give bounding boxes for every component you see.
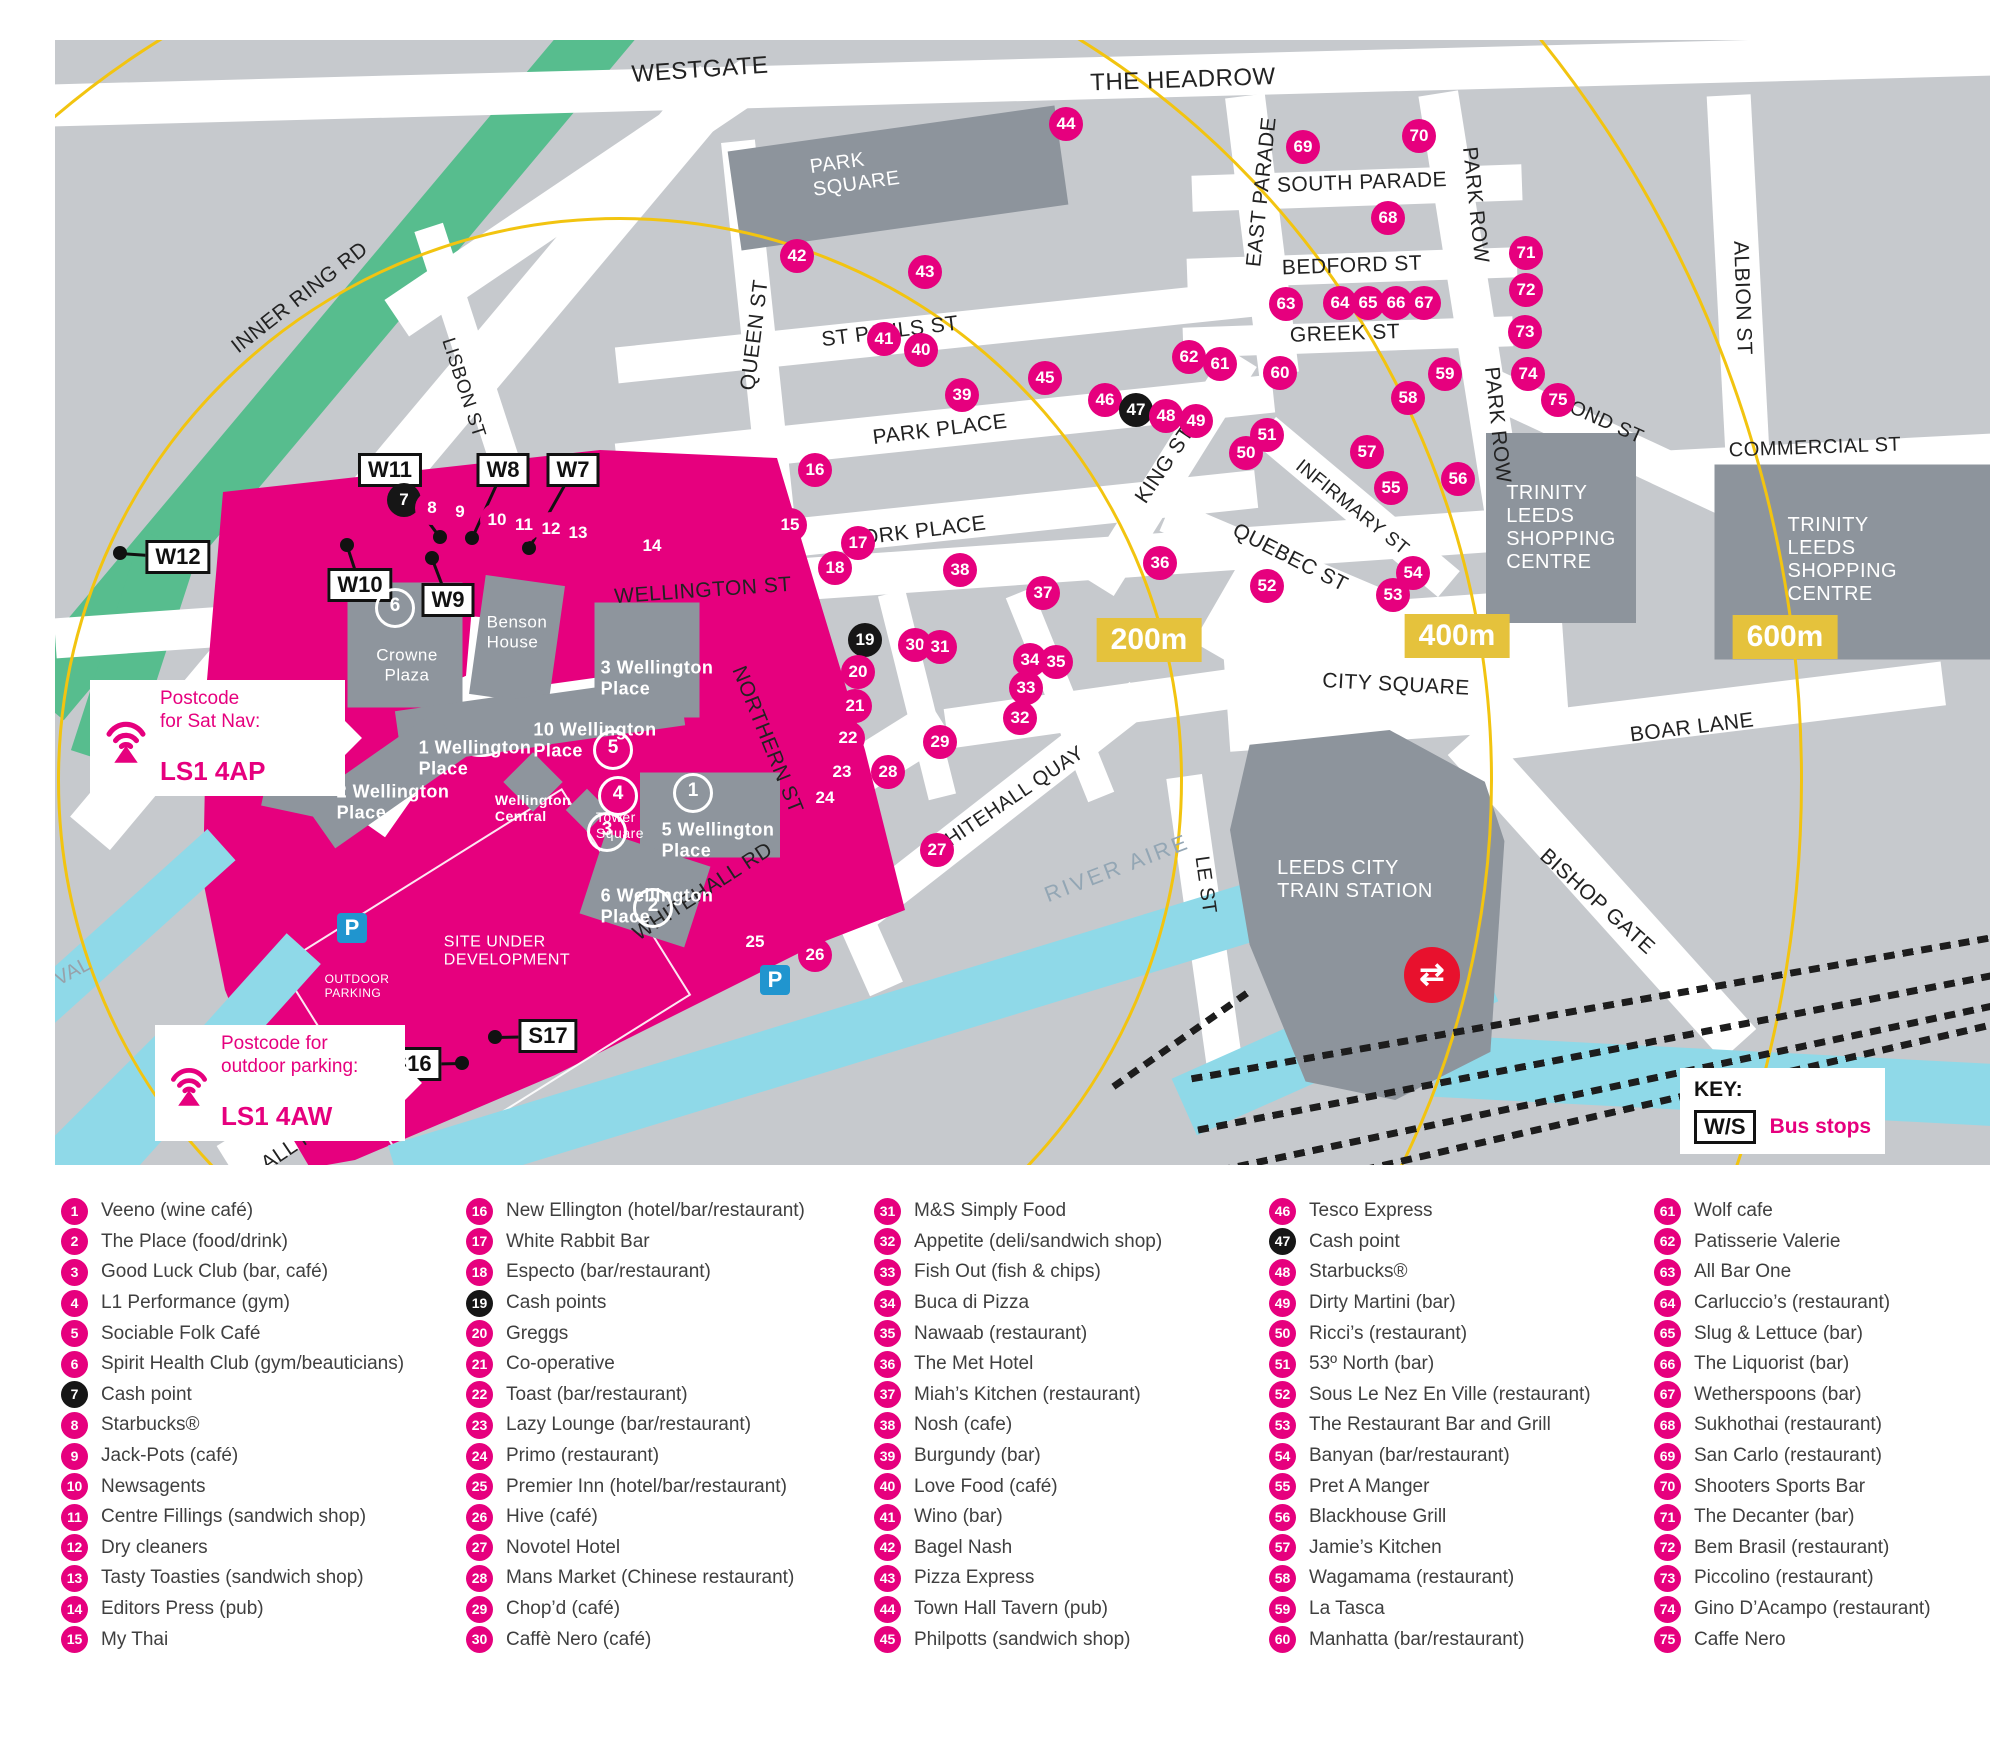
legend-item-69: 69San Carlo (restaurant): [1654, 1441, 1931, 1472]
legend-item-12: 12Dry cleaners: [61, 1533, 404, 1564]
map-key: KEY: W/S Bus stops: [1680, 1068, 1885, 1154]
legend-item-30: 30Caffè Nero (café): [466, 1624, 805, 1655]
legend-label-31: M&S Simply Food: [914, 1200, 1066, 1222]
map-marker-29[interactable]: 29: [923, 725, 957, 759]
legend-item-33: 33Fish Out (fish & chips): [874, 1257, 1162, 1288]
map-marker-51[interactable]: 51: [1250, 418, 1284, 452]
legend-item-62: 62Patisserie Valerie: [1654, 1227, 1931, 1258]
legend-item-39: 39Burgundy (bar): [874, 1441, 1162, 1472]
legend-item-42: 42Bagel Nash: [874, 1533, 1162, 1564]
legend-item-47: 47Cash point: [1269, 1227, 1591, 1258]
legend-label-56: Blackhouse Grill: [1309, 1506, 1446, 1528]
map-marker-24[interactable]: 24: [808, 781, 842, 815]
legend-item-31: 31M&S Simply Food: [874, 1196, 1162, 1227]
satnav-postcode: LS1 4AP: [160, 756, 266, 786]
map-marker-26[interactable]: 26: [798, 938, 832, 972]
legend-item-45: 45Philpotts (sandwich shop): [874, 1624, 1162, 1655]
legend-label-6: Spirit Health Club (gym/beauticians): [101, 1353, 404, 1375]
legend-number-11: 11: [61, 1504, 88, 1531]
legend-label-1: Veeno (wine café): [101, 1200, 253, 1222]
legend-label-23: Lazy Lounge (bar/restaurant): [506, 1414, 751, 1436]
legend-number-24: 24: [466, 1443, 493, 1470]
legend-item-38: 38Nosh (cafe): [874, 1410, 1162, 1441]
legend-number-27: 27: [466, 1534, 493, 1561]
legend-number-73: 73: [1654, 1565, 1681, 1592]
legend-label-21: Co-operative: [506, 1353, 615, 1375]
legend-label-46: Tesco Express: [1309, 1200, 1433, 1222]
legend-number-23: 23: [466, 1412, 493, 1439]
map-marker-57[interactable]: 57: [1350, 435, 1384, 469]
legend-number-74: 74: [1654, 1596, 1681, 1623]
legend-number-14: 14: [61, 1596, 88, 1623]
legend-item-25: 25Premier Inn (hotel/bar/restaurant): [466, 1471, 805, 1502]
legend-number-39: 39: [874, 1443, 901, 1470]
legend-item-10: 10Newsagents: [61, 1471, 404, 1502]
legend-number-25: 25: [466, 1473, 493, 1500]
map-label-bedford-st: BEDFORD ST: [1281, 251, 1422, 280]
legend-item-19: 19Cash points: [466, 1288, 805, 1319]
legend-label-53: The Restaurant Bar and Grill: [1309, 1414, 1551, 1436]
legend-item-74: 74Gino D’Acampo (restaurant): [1654, 1594, 1931, 1625]
legend-number-70: 70: [1654, 1473, 1681, 1500]
legend-label-26: Hive (café): [506, 1506, 598, 1528]
legend-number-35: 35: [874, 1320, 901, 1347]
legend-number-40: 40: [874, 1473, 901, 1500]
map-marker-47[interactable]: 47: [1119, 393, 1153, 427]
distance-badge-600m: 600m: [1733, 615, 1838, 659]
map-marker-15[interactable]: 15: [773, 508, 807, 542]
map-marker-19[interactable]: 19: [848, 623, 882, 657]
legend-number-18: 18: [466, 1259, 493, 1286]
satnav-callout-text: Postcode for Sat Nav:: [160, 688, 260, 732]
map-marker-41[interactable]: 41: [867, 322, 901, 356]
legend-number-71: 71: [1654, 1504, 1681, 1531]
map-marker-75[interactable]: 75: [1541, 383, 1575, 417]
legend-label-15: My Thai: [101, 1629, 168, 1651]
map-marker-58[interactable]: 58: [1391, 381, 1425, 415]
legend-label-41: Wino (bar): [914, 1506, 1003, 1528]
legend-number-12: 12: [61, 1534, 88, 1561]
legend-item-21: 21Co-operative: [466, 1349, 805, 1380]
map-marker-46[interactable]: 46: [1088, 383, 1122, 417]
map-marker-35[interactable]: 35: [1039, 645, 1073, 679]
legend-item-68: 68Sukhothai (restaurant): [1654, 1410, 1931, 1441]
bus-stop-W12[interactable]: W12: [145, 540, 210, 574]
legend-label-4: L1 Performance (gym): [101, 1292, 290, 1314]
legend-item-32: 32Appetite (deli/sandwich shop): [874, 1227, 1162, 1258]
legend-column-1: 1Veeno (wine café)2The Place (food/drink…: [61, 1196, 404, 1655]
legend-item-64: 64Carluccio’s (restaurant): [1654, 1288, 1931, 1319]
map-marker-6[interactable]: 6: [375, 588, 415, 628]
legend-label-54: Banyan (bar/restaurant): [1309, 1445, 1510, 1467]
legend-item-46: 46Tesco Express: [1269, 1196, 1591, 1227]
map-label-5-wellington-place: 5 Wellington Place: [662, 819, 775, 860]
legend-item-28: 28Mans Market (Chinese restaurant): [466, 1563, 805, 1594]
legend-item-35: 35Nawaab (restaurant): [874, 1318, 1162, 1349]
map-marker-40[interactable]: 40: [904, 333, 938, 367]
legend-label-72: Bem Brasil (restaurant): [1694, 1537, 1889, 1559]
legend-item-70: 70Shooters Sports Bar: [1654, 1471, 1931, 1502]
legend-item-16: 16New Ellington (hotel/bar/restaurant): [466, 1196, 805, 1227]
legend-number-31: 31: [874, 1198, 901, 1225]
legend-item-66: 66The Liquorist (bar): [1654, 1349, 1931, 1380]
legend-column-4: 46Tesco Express47Cash point48Starbucks®4…: [1269, 1196, 1591, 1655]
bus-stop-symbol: W/S: [1694, 1110, 1756, 1144]
map-marker-1[interactable]: 1: [673, 773, 713, 813]
map-marker-2[interactable]: 2: [633, 888, 673, 928]
legend-number-58: 58: [1269, 1565, 1296, 1592]
map-marker-18[interactable]: 18: [818, 551, 852, 585]
legend-item-14: 14Editors Press (pub): [61, 1594, 404, 1625]
legend-item-65: 65Slug & Lettuce (bar): [1654, 1318, 1931, 1349]
legend-label-38: Nosh (cafe): [914, 1414, 1012, 1436]
map-marker-74[interactable]: 74: [1511, 357, 1545, 391]
legend-item-5: 5Sociable Folk Café: [61, 1318, 404, 1349]
legend-label-60: Manhatta (bar/restaurant): [1309, 1629, 1524, 1651]
map-marker-9[interactable]: 9: [443, 495, 477, 529]
legend-number-75: 75: [1654, 1626, 1681, 1653]
legend-item-37: 37Miah’s Kitchen (restaurant): [874, 1380, 1162, 1411]
legend-item-13: 13Tasty Toasties (sandwich shop): [61, 1563, 404, 1594]
legend-label-12: Dry cleaners: [101, 1537, 208, 1559]
map-marker-72[interactable]: 72: [1509, 273, 1543, 307]
legend-item-49: 49Dirty Martini (bar): [1269, 1288, 1591, 1319]
legend-number-41: 41: [874, 1504, 901, 1531]
legend-label-27: Novotel Hotel: [506, 1537, 620, 1559]
legend-column-2: 16New Ellington (hotel/bar/restaurant)17…: [466, 1196, 805, 1655]
legend-number-30: 30: [466, 1626, 493, 1653]
legend-number-44: 44: [874, 1596, 901, 1623]
map-marker-62[interactable]: 62: [1172, 340, 1206, 374]
legend-label-9: Jack-Pots (café): [101, 1445, 238, 1467]
bus-stop-W8[interactable]: W8: [477, 453, 530, 487]
legend-item-75: 75Caffe Nero: [1654, 1624, 1931, 1655]
bus-stop-W7[interactable]: W7: [547, 453, 600, 487]
satnav-postcode-callout: Postcode for Sat Nav: LS1 4AP: [90, 680, 345, 796]
legend-number-64: 64: [1654, 1290, 1681, 1317]
legend-label-74: Gino D’Acampo (restaurant): [1694, 1598, 1931, 1620]
map-marker-43[interactable]: 43: [908, 255, 942, 289]
legend-item-22: 22Toast (bar/restaurant): [466, 1380, 805, 1411]
legend-number-68: 68: [1654, 1412, 1681, 1439]
legend-label-11: Centre Fillings (sandwich shop): [101, 1506, 366, 1528]
legend-number-69: 69: [1654, 1443, 1681, 1470]
parking-icon-2: P: [337, 913, 367, 943]
legend-label-32: Appetite (deli/sandwich shop): [914, 1231, 1162, 1253]
map-marker-31[interactable]: 31: [923, 630, 957, 664]
legend-item-52: 52Sous Le Nez En Ville (restaurant): [1269, 1380, 1591, 1411]
legend-label-25: Premier Inn (hotel/bar/restaurant): [506, 1476, 787, 1498]
legend-number-37: 37: [874, 1381, 901, 1408]
map-marker-52[interactable]: 52: [1250, 569, 1284, 603]
legend-number-45: 45: [874, 1626, 901, 1653]
legend-label-35: Nawaab (restaurant): [914, 1323, 1087, 1345]
bus-stop-S17[interactable]: S17: [518, 1019, 577, 1053]
map-marker-61[interactable]: 61: [1203, 347, 1237, 381]
legend-label-73: Piccolino (restaurant): [1694, 1567, 1874, 1589]
map-marker-4[interactable]: 4: [598, 776, 638, 816]
map-marker-54[interactable]: 54: [1396, 556, 1430, 590]
legend-item-40: 40Love Food (café): [874, 1471, 1162, 1502]
map-marker-32[interactable]: 32: [1003, 701, 1037, 735]
bus-stop-label: Bus stops: [1770, 1115, 1872, 1139]
legend-label-2: The Place (food/drink): [101, 1231, 288, 1253]
map-marker-25[interactable]: 25: [738, 925, 772, 959]
legend-item-54: 54Banyan (bar/restaurant): [1269, 1441, 1591, 1472]
legend-label-40: Love Food (café): [914, 1476, 1058, 1498]
legend-item-61: 61Wolf cafe: [1654, 1196, 1931, 1227]
legend-number-28: 28: [466, 1565, 493, 1592]
legend-label-47: Cash point: [1309, 1231, 1400, 1253]
map-marker-59[interactable]: 59: [1428, 357, 1462, 391]
legend-number-51: 51: [1269, 1351, 1296, 1378]
legend-item-17: 17White Rabbit Bar: [466, 1227, 805, 1258]
map-marker-27[interactable]: 27: [920, 833, 954, 867]
legend-item-29: 29Chop’d (café): [466, 1594, 805, 1625]
map-label-albion-st: ALBION ST: [1728, 241, 1756, 356]
legend-item-9: 9Jack-Pots (café): [61, 1441, 404, 1472]
national-rail-icon: ⇄: [1404, 947, 1460, 1003]
legend-number-63: 63: [1654, 1259, 1681, 1286]
legend-number-54: 54: [1269, 1443, 1296, 1470]
legend-item-63: 63All Bar One: [1654, 1257, 1931, 1288]
map-marker-71[interactable]: 71: [1509, 236, 1543, 270]
legend-label-22: Toast (bar/restaurant): [506, 1384, 688, 1406]
legend-item-24: 24Primo (restaurant): [466, 1441, 805, 1472]
legend-item-34: 34Buca di Pizza: [874, 1288, 1162, 1319]
legend-item-67: 67Wetherspoons (bar): [1654, 1380, 1931, 1411]
legend-label-68: Sukhothai (restaurant): [1694, 1414, 1882, 1436]
legend-label-44: Town Hall Tavern (pub): [914, 1598, 1108, 1620]
legend-label-45: Philpotts (sandwich shop): [914, 1629, 1131, 1651]
legend-label-43: Pizza Express: [914, 1567, 1034, 1589]
legend-number-66: 66: [1654, 1351, 1681, 1378]
map-marker-38[interactable]: 38: [943, 553, 977, 587]
map-marker-70[interactable]: 70: [1402, 119, 1436, 153]
legend-number-48: 48: [1269, 1259, 1296, 1286]
map-marker-37[interactable]: 37: [1026, 576, 1060, 610]
map-label-2-wellington-place: 2 Wellington Place: [337, 781, 450, 822]
legend-label-69: San Carlo (restaurant): [1694, 1445, 1882, 1467]
map-marker-45[interactable]: 45: [1028, 361, 1062, 395]
legend-number-26: 26: [466, 1504, 493, 1531]
legend-number-59: 59: [1269, 1596, 1296, 1623]
legend-number-10: 10: [61, 1473, 88, 1500]
legend-label-49: Dirty Martini (bar): [1309, 1292, 1456, 1314]
legend-item-59: 59La Tasca: [1269, 1594, 1591, 1625]
map-marker-42[interactable]: 42: [780, 239, 814, 273]
legend-item-44: 44Town Hall Tavern (pub): [874, 1594, 1162, 1625]
legend-number-60: 60: [1269, 1626, 1296, 1653]
legend-number-13: 13: [61, 1565, 88, 1592]
legend-item-50: 50Ricci’s (restaurant): [1269, 1318, 1591, 1349]
legend-label-29: Chop’d (café): [506, 1598, 620, 1620]
legend-label-48: Starbucks®: [1309, 1261, 1407, 1283]
map-marker-22[interactable]: 22: [831, 721, 865, 755]
legend-label-34: Buca di Pizza: [914, 1292, 1029, 1314]
legend-number-32: 32: [874, 1228, 901, 1255]
legend-label-52: Sous Le Nez En Ville (restaurant): [1309, 1384, 1591, 1406]
legend-number-9: 9: [61, 1443, 88, 1470]
map-marker-36[interactable]: 36: [1143, 546, 1177, 580]
map-marker-28[interactable]: 28: [871, 755, 905, 789]
satnav-beacon-icon: [100, 712, 152, 764]
map-marker-49[interactable]: 49: [1179, 404, 1213, 438]
map-marker-68[interactable]: 68: [1371, 201, 1405, 235]
outdoor-parking-callout-text: Postcode for outdoor parking:: [221, 1033, 358, 1077]
legend-label-36: The Met Hotel: [914, 1353, 1033, 1375]
map-marker-39[interactable]: 39: [945, 378, 979, 412]
legend-item-2: 2The Place (food/drink): [61, 1227, 404, 1258]
outdoor-parking-postcode-callout: Postcode for outdoor parking: LS1 4AW: [155, 1025, 405, 1141]
leeds-wellington-place-map-page: WESTGATETHE HEADROWSOUTH PARADEBEDFORD S…: [0, 0, 2000, 1758]
legend-item-53: 53The Restaurant Bar and Grill: [1269, 1410, 1591, 1441]
map-marker-73[interactable]: 73: [1508, 315, 1542, 349]
legend-label-59: La Tasca: [1309, 1598, 1385, 1620]
legend-number-33: 33: [874, 1259, 901, 1286]
map-label-benson-house: Benson House: [487, 612, 548, 651]
map-label-leeds-city-train-station: LEEDS CITY TRAIN STATION: [1277, 857, 1433, 903]
legend-number-5: 5: [61, 1320, 88, 1347]
legend-number-38: 38: [874, 1412, 901, 1439]
bus-stop-W11[interactable]: W11: [358, 453, 422, 487]
legend-item-3: 3Good Luck Club (bar, café): [61, 1257, 404, 1288]
legend-number-7: 7: [61, 1381, 88, 1408]
legend-number-21: 21: [466, 1351, 493, 1378]
legend-label-64: Carluccio’s (restaurant): [1694, 1292, 1890, 1314]
legend-item-23: 23Lazy Lounge (bar/restaurant): [466, 1410, 805, 1441]
legend-label-66: The Liquorist (bar): [1694, 1353, 1849, 1375]
legend-number-55: 55: [1269, 1473, 1296, 1500]
map-marker-5[interactable]: 5: [593, 730, 633, 770]
parking-icon-3: P: [760, 965, 790, 995]
legend-number-53: 53: [1269, 1412, 1296, 1439]
bus-stop-dot-W11: [433, 530, 447, 544]
legend-label-14: Editors Press (pub): [101, 1598, 264, 1620]
legend-number-8: 8: [61, 1412, 88, 1439]
legend-number-56: 56: [1269, 1504, 1296, 1531]
legend-number-52: 52: [1269, 1381, 1296, 1408]
map-marker-3[interactable]: 3: [587, 812, 627, 852]
map-marker-60[interactable]: 60: [1263, 356, 1297, 390]
legend-item-57: 57Jamie’s Kitchen: [1269, 1533, 1591, 1564]
legend-label-5: Sociable Folk Café: [101, 1323, 260, 1345]
legend-label-67: Wetherspoons (bar): [1694, 1384, 1862, 1406]
legend-number-34: 34: [874, 1290, 901, 1317]
distance-badge-400m: 400m: [1405, 614, 1510, 658]
map-label-crowne-plaza: Crowne Plaza: [376, 645, 438, 684]
map-marker-63[interactable]: 63: [1269, 287, 1303, 321]
map-label-site-under-development: SITE UNDER DEVELOPMENT: [444, 934, 570, 971]
map-marker-14[interactable]: 14: [635, 529, 669, 563]
legend-number-57: 57: [1269, 1534, 1296, 1561]
map-marker-20[interactable]: 20: [841, 655, 875, 689]
legend-label-17: White Rabbit Bar: [506, 1231, 650, 1253]
map-label-trinity-leeds-shopping-centre: TRINITY LEEDS SHOPPING CENTRE: [1788, 514, 1923, 606]
distance-badge-200m: 200m: [1097, 618, 1202, 662]
map-marker-21[interactable]: 21: [838, 689, 872, 723]
arc-600m: [55, 40, 1803, 1165]
legend-item-8: 8Starbucks®: [61, 1410, 404, 1441]
legend-item-43: 43Pizza Express: [874, 1563, 1162, 1594]
legend-label-16: New Ellington (hotel/bar/restaurant): [506, 1200, 805, 1222]
legend-label-55: Pret A Manger: [1309, 1476, 1429, 1498]
legend-item-7: 7Cash point: [61, 1380, 404, 1411]
map-marker-67[interactable]: 67: [1407, 286, 1441, 320]
map-label-3-wellington-place: 3 Wellington Place: [601, 657, 714, 698]
legend-item-56: 56Blackhouse Grill: [1269, 1502, 1591, 1533]
legend-column-5: 61Wolf cafe62Patisserie Valerie63All Bar…: [1654, 1196, 1931, 1655]
legend-item-20: 20Greggs: [466, 1318, 805, 1349]
legend-item-60: 60Manhatta (bar/restaurant): [1269, 1624, 1591, 1655]
legend-number-62: 62: [1654, 1228, 1681, 1255]
legend-label-70: Shooters Sports Bar: [1694, 1476, 1865, 1498]
legend-label-57: Jamie’s Kitchen: [1309, 1537, 1442, 1559]
legend-item-55: 55Pret A Manger: [1269, 1471, 1591, 1502]
bus-stop-dot-S16: [455, 1056, 469, 1070]
legend-label-65: Slug & Lettuce (bar): [1694, 1323, 1863, 1345]
bus-stop-W9[interactable]: W9: [422, 583, 475, 617]
map-marker-16[interactable]: 16: [798, 453, 832, 487]
legend-number-3: 3: [61, 1259, 88, 1286]
legend-number-16: 16: [466, 1198, 493, 1225]
map-marker-56[interactable]: 56: [1441, 462, 1475, 496]
map-marker-48[interactable]: 48: [1149, 399, 1183, 433]
legend-label-63: All Bar One: [1694, 1261, 1791, 1283]
legend-label-7: Cash point: [101, 1384, 192, 1406]
legend-label-13: Tasty Toasties (sandwich shop): [101, 1567, 364, 1589]
map-canvas[interactable]: WESTGATETHE HEADROWSOUTH PARADEBEDFORD S…: [55, 40, 1990, 1165]
legend-number-43: 43: [874, 1565, 901, 1592]
bus-stop-dot-S17: [488, 1030, 502, 1044]
legend-number-4: 4: [61, 1290, 88, 1317]
key-title: KEY:: [1694, 1078, 1871, 1102]
legend-label-3: Good Luck Club (bar, café): [101, 1261, 328, 1283]
legend-label-18: Especto (bar/restaurant): [506, 1261, 711, 1283]
map-label-outdoor-parking: OUTDOOR PARKING: [325, 973, 390, 1001]
legend-number-61: 61: [1654, 1198, 1681, 1225]
legend-column-3: 31M&S Simply Food32Appetite (deli/sandwi…: [874, 1196, 1162, 1655]
legend-item-1: 1Veeno (wine café): [61, 1196, 404, 1227]
legend-item-72: 72Bem Brasil (restaurant): [1654, 1533, 1931, 1564]
bus-stop-dot-W10: [340, 538, 354, 552]
map-marker-44[interactable]: 44: [1049, 107, 1083, 141]
legend-label-61: Wolf cafe: [1694, 1200, 1773, 1222]
map-marker-69[interactable]: 69: [1286, 130, 1320, 164]
legend-number-47: 47: [1269, 1228, 1296, 1255]
legend-label-37: Miah’s Kitchen (restaurant): [914, 1384, 1141, 1406]
legend-label-10: Newsagents: [101, 1476, 206, 1498]
legend-label-51: 53º North (bar): [1309, 1353, 1434, 1375]
map-marker-13[interactable]: 13: [561, 516, 595, 550]
legend-label-50: Ricci’s (restaurant): [1309, 1323, 1467, 1345]
legend-item-27: 27Novotel Hotel: [466, 1533, 805, 1564]
legend-label-75: Caffe Nero: [1694, 1629, 1786, 1651]
legend-number-72: 72: [1654, 1534, 1681, 1561]
map-marker-55[interactable]: 55: [1374, 471, 1408, 505]
legend-number-50: 50: [1269, 1320, 1296, 1347]
legend-number-46: 46: [1269, 1198, 1296, 1225]
legend-number-20: 20: [466, 1320, 493, 1347]
legend-label-19: Cash points: [506, 1292, 606, 1314]
legend-number-17: 17: [466, 1228, 493, 1255]
map-label-trinity-leeds-shopping-centre: TRINITY LEEDS SHOPPING CENTRE: [1506, 482, 1616, 574]
legend-item-36: 36The Met Hotel: [874, 1349, 1162, 1380]
legend-label-33: Fish Out (fish & chips): [914, 1261, 1101, 1283]
map-label-1-wellington-place: 1 Wellington Place: [419, 737, 532, 778]
map-label-greek-st: GREEK ST: [1290, 320, 1401, 348]
legend-item-11: 11Centre Fillings (sandwich shop): [61, 1502, 404, 1533]
